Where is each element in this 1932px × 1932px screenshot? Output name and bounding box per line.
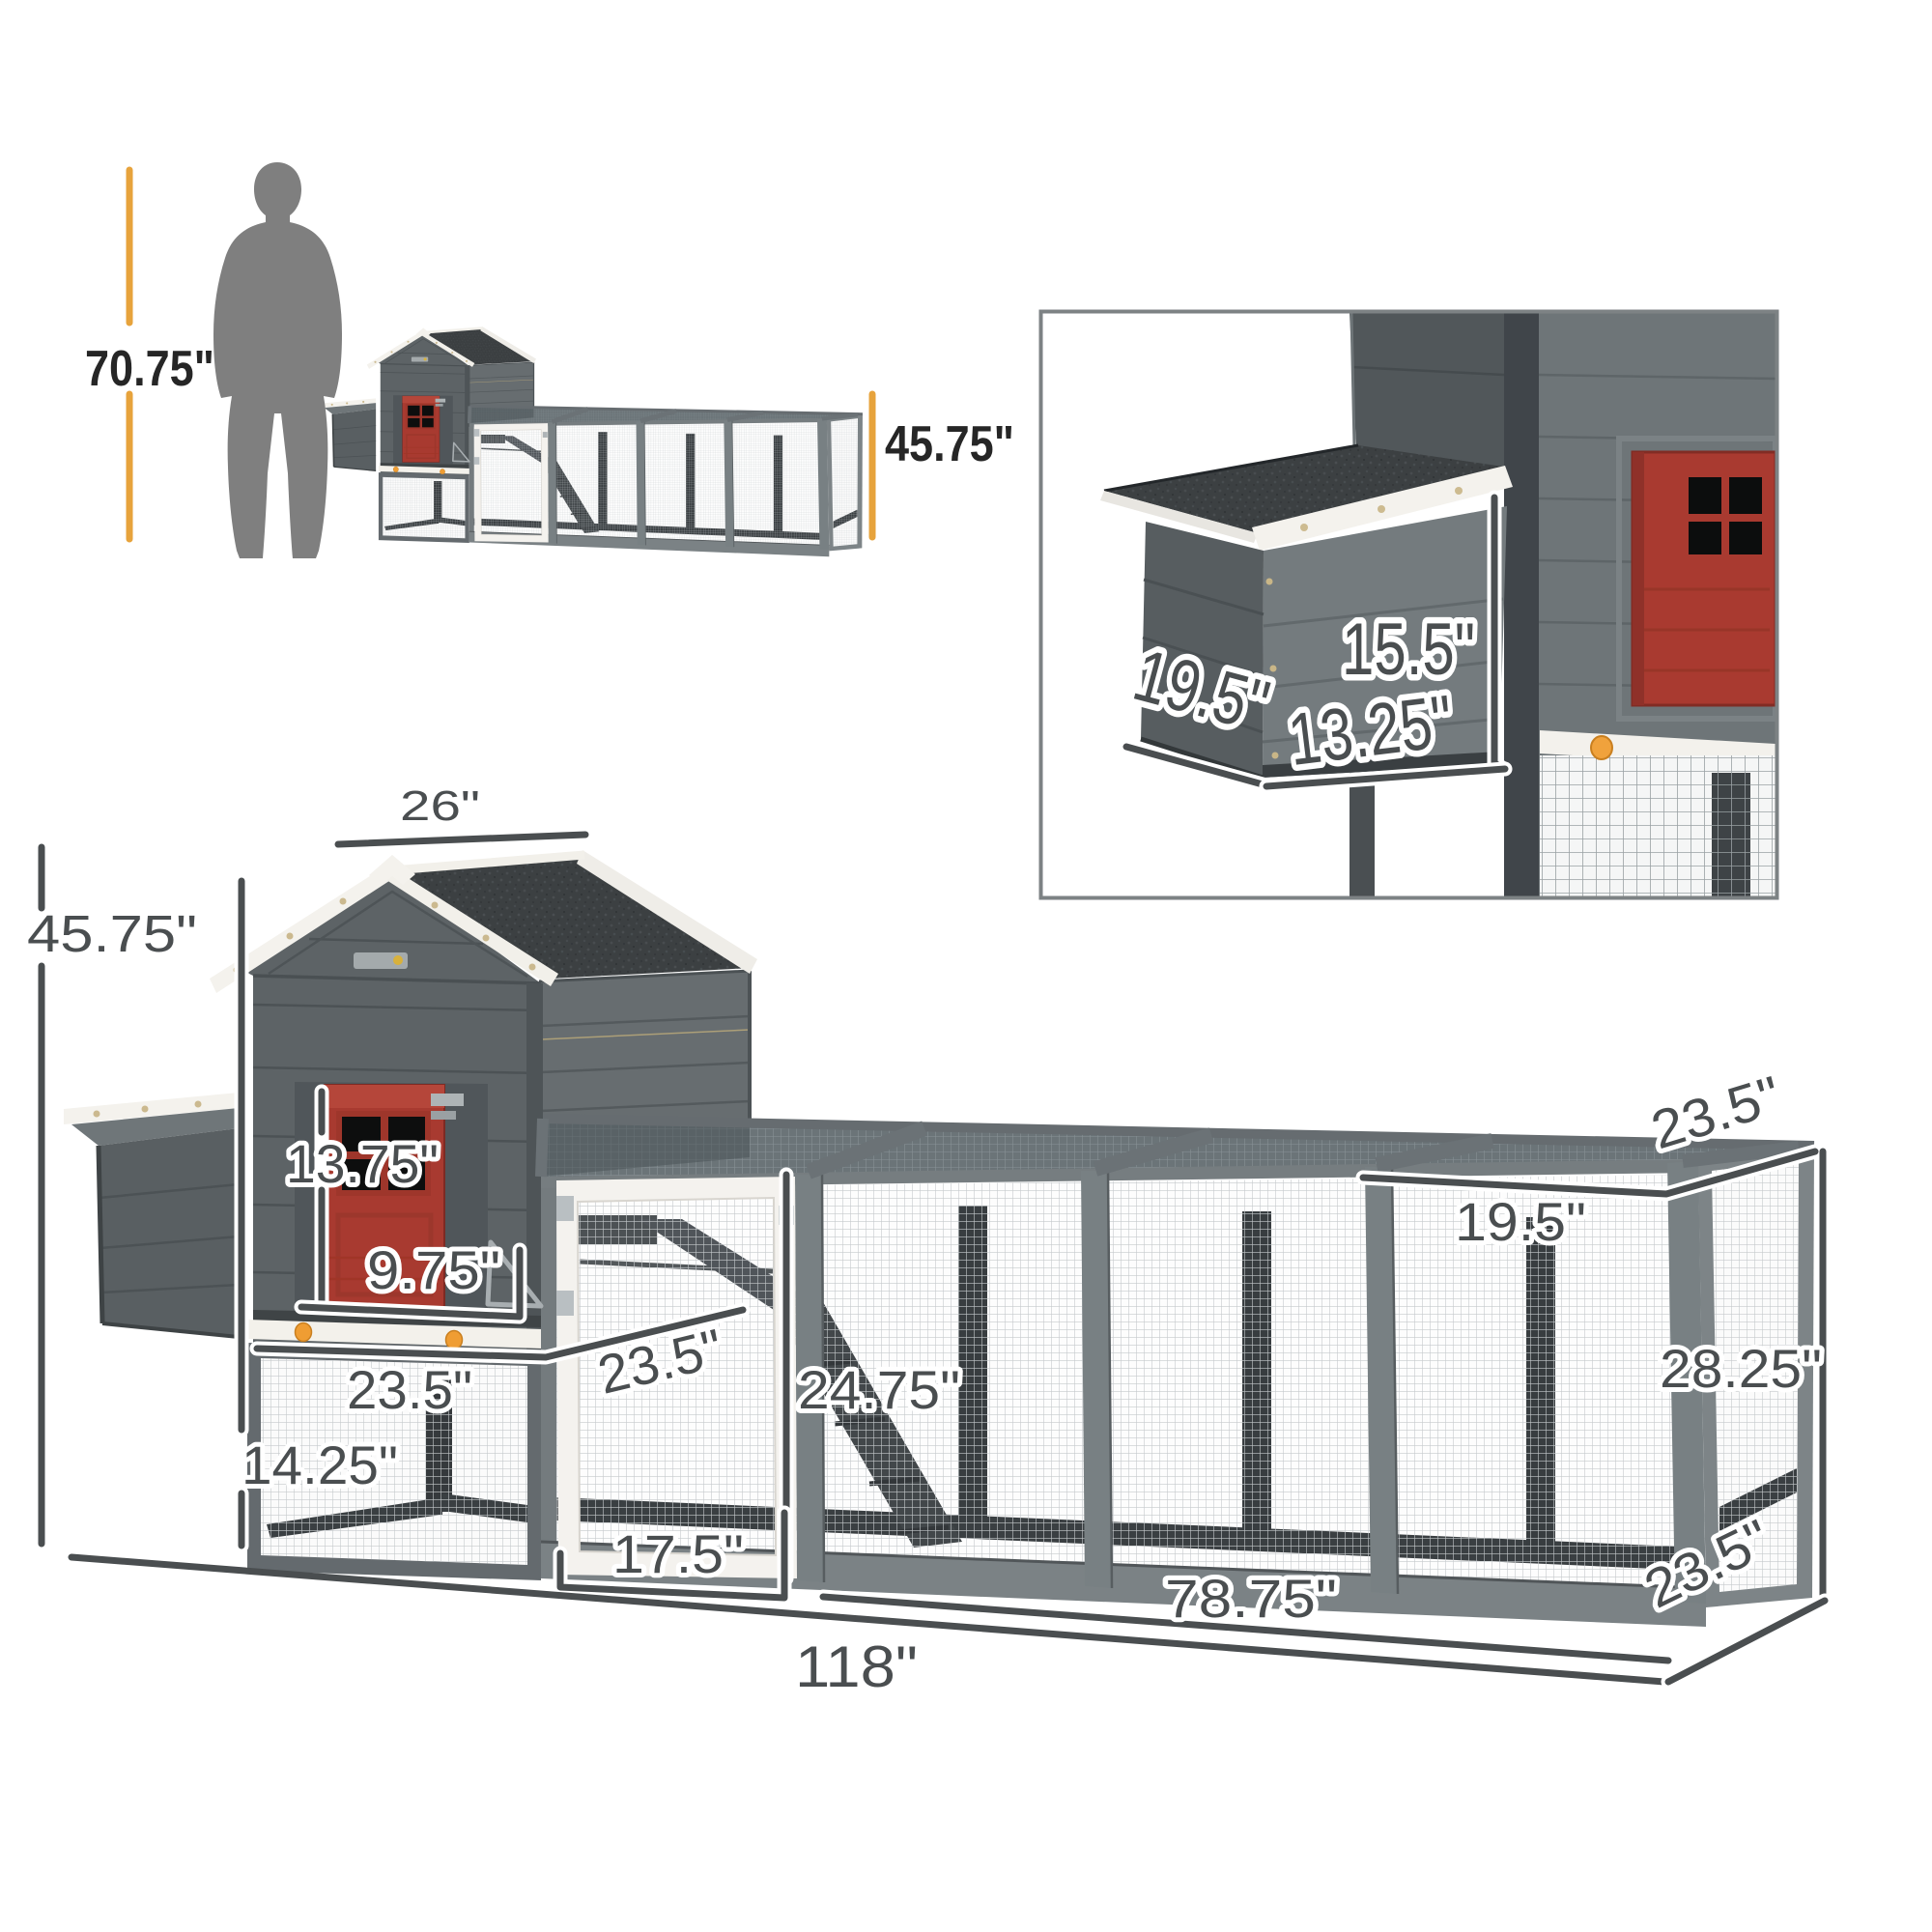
svg-text:78.75": 78.75": [1165, 1568, 1337, 1629]
svg-text:13.75": 13.75": [286, 1133, 439, 1194]
svg-text:9.75": 9.75": [367, 1239, 500, 1300]
svg-text:24.75": 24.75": [798, 1359, 960, 1420]
svg-text:70.75": 70.75": [85, 341, 214, 397]
svg-text:26": 26": [400, 782, 480, 830]
svg-text:23.5": 23.5": [347, 1359, 472, 1420]
svg-text:19.5": 19.5": [1455, 1191, 1586, 1252]
svg-text:118": 118": [795, 1634, 918, 1699]
svg-text:45.75": 45.75": [27, 905, 197, 963]
svg-text:17.5": 17.5": [612, 1523, 744, 1584]
svg-text:28.25": 28.25": [1660, 1338, 1822, 1399]
svg-text:15.5": 15.5": [1342, 609, 1475, 691]
svg-text:45.75": 45.75": [885, 416, 1014, 472]
svg-text:14.25": 14.25": [241, 1435, 398, 1495]
